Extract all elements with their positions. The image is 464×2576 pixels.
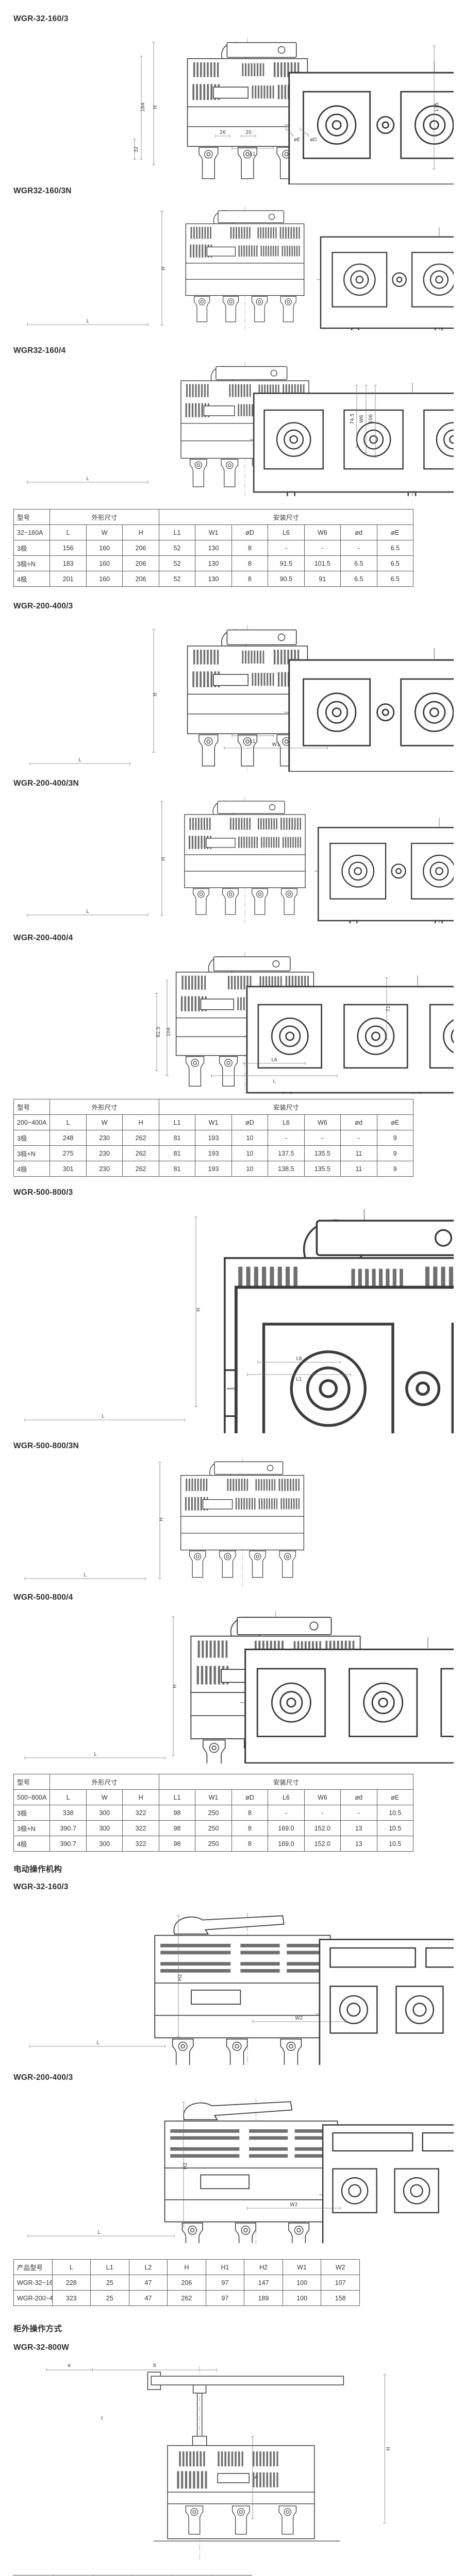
svg-text:b: b (153, 2363, 156, 2368)
table-col-header: L1 (159, 1790, 195, 1805)
table-cell: 97 (206, 2291, 244, 2306)
svg-text:H: H (159, 1517, 164, 1521)
table-cell: 3极+N (14, 1146, 50, 1161)
table-col-header: øD (231, 1115, 268, 1130)
technical-drawing-wgr-200-400-4: 82.5104L6L71 (10, 947, 454, 1094)
table-col-header: ød (341, 1115, 377, 1130)
table-cell: 52 (159, 556, 195, 571)
technical-drawing-wgr-32-800w: abchH (10, 2359, 454, 2560)
table-cell: 230 (86, 1130, 122, 1146)
table-row: 3极156160206521308---6.5 (14, 540, 413, 556)
table-cell: 138.5 (268, 1161, 304, 1177)
table-col-header: W (86, 1790, 122, 1805)
table-cell: - (341, 540, 377, 556)
svg-text:W2: W2 (295, 2015, 303, 2021)
section-title-external-operation: 柜外操作方式 (13, 2323, 62, 2334)
table-cell: 98 (159, 1805, 195, 1821)
table-row: 3极2482302628119310---9 (14, 1130, 413, 1146)
table-row: 3极+N2752302628119310137.5135.5119 (14, 1146, 413, 1161)
technical-drawing-wgr-500-800-3n: LH (10, 1455, 454, 1586)
table-col-header: L (50, 1115, 86, 1130)
section-title-wgr-500-800-4: WGR-500-800/4 (13, 1593, 73, 1602)
table-cell: 10 (231, 1161, 268, 1177)
table-col-header: H (123, 1115, 159, 1130)
table-cell: 160 (86, 571, 122, 587)
technical-drawing-wgr32-160-4: 74.5W6106L (10, 360, 454, 496)
table-cell: 91 (304, 571, 340, 587)
table-group-header: 型号 (14, 1774, 50, 1790)
svg-text:26: 26 (220, 130, 226, 135)
table-col-header: øD (231, 525, 268, 540)
table-cell: 4极 (14, 571, 50, 587)
svg-text:L: L (97, 2230, 101, 2235)
svg-text:øE: øE (294, 137, 300, 143)
section-title-motor-wgr-32-160-3: WGR-32-160/3 (13, 1883, 69, 1892)
svg-text:L: L (94, 1752, 97, 1757)
svg-text:øD: øD (310, 137, 317, 143)
svg-text:h: h (254, 2476, 259, 2479)
svg-text:L6: L6 (296, 1356, 302, 1362)
table-cell: 248 (50, 1130, 86, 1146)
svg-text:L: L (86, 318, 89, 324)
svg-text:106: 106 (368, 414, 374, 423)
table-col-header: W1 (195, 525, 231, 540)
table-cell: 300 (86, 1836, 122, 1852)
svg-text:L: L (102, 1414, 105, 1419)
table-cell: 250 (195, 1821, 231, 1836)
table-cell: 6.5 (341, 571, 377, 587)
svg-text:L: L (84, 1572, 87, 1578)
technical-drawing-wgr-200-400-3: HLL1W1 (10, 617, 454, 772)
table-group-header: 外形尺寸 (50, 510, 159, 525)
table-col-header: W2 (321, 2260, 360, 2275)
svg-text:71: 71 (386, 1006, 391, 1012)
table-cell: - (268, 1130, 304, 1146)
table-col-header: L (52, 2260, 91, 2275)
table-cell: 228 (52, 2275, 91, 2291)
table-col-header: W (86, 525, 122, 540)
table-cell: 13 (341, 1836, 377, 1852)
table-row: 3极+N18316020652130891.5101.56.56.5 (14, 556, 413, 571)
table-cell: WGR-200~400 (14, 2291, 53, 2306)
table-cell: 300 (86, 1821, 122, 1836)
table-cell: 8 (231, 556, 268, 571)
table-cell: 135.5 (304, 1146, 340, 1161)
table-cell: 13 (341, 1821, 377, 1836)
svg-text:H2: H2 (177, 1974, 183, 1980)
table-cell: 160 (86, 540, 122, 556)
table-col-header: H2 (244, 2260, 283, 2275)
svg-text:H2: H2 (183, 2162, 188, 2169)
table-cell: 107 (321, 2275, 360, 2291)
table-cell: 4极 (14, 1836, 50, 1852)
svg-text:L1: L1 (296, 1377, 302, 1382)
section-title-wgr-500-800-3: WGR-500-800/3 (13, 1188, 73, 1197)
table-col-header: W6 (304, 525, 340, 540)
table-cell: 101.5 (304, 556, 340, 571)
svg-text:135: 135 (434, 103, 440, 112)
svg-text:L1: L1 (250, 739, 255, 744)
table-cell: 193 (195, 1161, 231, 1177)
section-title-wgr32-160-4: WGR32-160/4 (13, 346, 65, 355)
table-col-header: L6 (268, 1790, 304, 1805)
svg-text:L: L (86, 476, 89, 482)
table-group-header: 型号 (14, 510, 50, 525)
table-cell: 300 (86, 1805, 122, 1821)
table-row: 3极338300322982508---10.5 (14, 1805, 413, 1821)
table-cell: 3极+N (14, 556, 50, 571)
table-cell: 9 (377, 1130, 413, 1146)
table-cell: 52 (159, 540, 195, 556)
svg-text:L: L (86, 909, 89, 914)
table-col-header: L (50, 1790, 86, 1805)
table-cell: 10.5 (377, 1821, 413, 1836)
table-cell: 390.7 (50, 1836, 86, 1852)
section-title-wgr-200-400-3: WGR-200-400/3 (13, 602, 73, 611)
table-cell: 193 (195, 1146, 231, 1161)
table-group-header: 外形尺寸 (50, 1774, 159, 1790)
section-title-wgr-32-160-3: WGR-32-160/3 (13, 14, 69, 24)
table-cell: 81 (159, 1161, 195, 1177)
table-cell: 25 (91, 2275, 129, 2291)
section-title-wgr-500-800-3n: WGR-500-800/3N (13, 1442, 79, 1451)
table-cell: 100 (283, 2275, 321, 2291)
table-cell: 8 (231, 1836, 268, 1852)
table-cell: 262 (123, 1130, 159, 1146)
table-col-header: øD (231, 1790, 268, 1805)
table-cell: 130 (195, 571, 231, 587)
technical-drawing-wgr-500-800-3: LHL6L1 (10, 1201, 454, 1433)
table-cell: 338 (50, 1805, 86, 1821)
svg-text:L: L (273, 1079, 276, 1084)
svg-text:82.5: 82.5 (156, 1026, 161, 1037)
svg-text:L: L (96, 2040, 100, 2046)
table-col-header: H (168, 2260, 206, 2275)
table-cell: 47 (129, 2275, 168, 2291)
table-cell: 323 (52, 2291, 91, 2306)
table-cell: 230 (86, 1161, 122, 1177)
catalog-page: WGR-32-160/3 164H322620L1øEøD135 WGR32-1… (0, 0, 464, 2576)
table-cell: 250 (195, 1836, 231, 1852)
table-col-header: W (86, 1115, 122, 1130)
table-cell: 169.0 (268, 1821, 304, 1836)
svg-text:H: H (172, 1684, 178, 1688)
spec-table-motor-operator: 产品型号LL1L2HH1H2W1W2WGR-32~160228254720697… (13, 2259, 360, 2306)
table-col-header: H (123, 1790, 159, 1805)
table-cell: 6.5 (377, 556, 413, 571)
table-cell: 206 (123, 540, 159, 556)
table-cell: 322 (123, 1805, 159, 1821)
table-col-header: L6 (268, 1115, 304, 1130)
table-col-header: W1 (195, 1790, 231, 1805)
table-row: 3极+N390.7300322982508169.0152.01310.5 (14, 1821, 413, 1836)
table-cell: 8 (231, 1805, 268, 1821)
table-cell: WGR-32~160 (14, 2275, 53, 2291)
svg-text:H: H (161, 266, 167, 270)
table-cell: 301 (50, 1161, 86, 1177)
table-col-header: 200~400A (14, 1115, 50, 1130)
table-cell: 147 (244, 2275, 283, 2291)
svg-text:20: 20 (245, 130, 252, 135)
table-cell: 160 (86, 556, 122, 571)
technical-drawing-wgr-500-800-4: LH (10, 1606, 454, 1764)
table-cell: 8 (231, 540, 268, 556)
table-cell: 9 (377, 1161, 413, 1177)
table-cell: - (304, 1130, 340, 1146)
table-row: 4极20116020652130890.5916.56.5 (14, 571, 413, 587)
table-cell: 3极 (14, 540, 50, 556)
table-cell: 156 (50, 540, 86, 556)
section-title-wgr-32-800w: WGR-32-800W (13, 2343, 69, 2352)
table-cell: 3极+N (14, 1821, 50, 1836)
table-cell: 206 (123, 556, 159, 571)
table-cell: 4极 (14, 1161, 50, 1177)
table-col-header: 产品型号 (14, 2260, 53, 2275)
svg-text:H: H (161, 857, 167, 860)
table-group-header: 安装尺寸 (159, 1099, 413, 1115)
section-title-wgr-200-400-4: WGR-200-400/4 (13, 934, 73, 943)
svg-text:L: L (78, 757, 81, 763)
table-cell: 100 (283, 2291, 321, 2306)
table-cell: 130 (195, 540, 231, 556)
table-cell: 90.5 (268, 571, 304, 587)
table-cell: 169.0 (268, 1836, 304, 1852)
table-cell: 6.5 (377, 571, 413, 587)
table-col-header: W1 (195, 1115, 231, 1130)
table-cell: 81 (159, 1146, 195, 1161)
table-cell: 3极 (14, 1130, 50, 1146)
table-cell: 390.7 (50, 1821, 86, 1836)
svg-text:W1: W1 (272, 742, 279, 748)
table-row: 4极3012302628119310138.5135.5119 (14, 1161, 413, 1177)
table-cell: 25 (91, 2291, 129, 2306)
table-cell: 3极 (14, 1805, 50, 1821)
table-cell: 91.5 (268, 556, 304, 571)
table-cell: 11 (341, 1146, 377, 1161)
section-title-motor-wgr-200-400-3: WGR-200-400/3 (13, 2073, 73, 2082)
technical-drawing-motor-wgr-32-160-3: H2LW2 (10, 1900, 454, 2065)
table-cell: 189 (244, 2291, 283, 2306)
section-title-motor-operator: 电动操作机构 (13, 1863, 62, 1874)
technical-drawing-wgr-200-400-3n: LH (10, 794, 454, 923)
table-cell: 201 (50, 571, 86, 587)
table-cell: 10.5 (377, 1836, 413, 1852)
table-cell: 97 (206, 2275, 244, 2291)
table-cell: 47 (129, 2291, 168, 2306)
table-col-header: W6 (304, 1115, 340, 1130)
table-cell: 250 (195, 1805, 231, 1821)
svg-text:c: c (101, 2415, 103, 2421)
svg-text:H: H (153, 105, 158, 109)
table-cell: 262 (123, 1146, 159, 1161)
table-row: WGR-200~400323254726297189100158 (14, 2291, 360, 2306)
section-title-wgr-200-400-3n: WGR-200-400/3N (13, 779, 79, 788)
svg-text:32: 32 (134, 146, 139, 152)
table-cell: 52 (159, 571, 195, 587)
svg-text:W2: W2 (290, 2202, 297, 2208)
table-cell: 10 (231, 1130, 268, 1146)
svg-text:L1: L1 (250, 151, 255, 157)
table-cell: 11 (341, 1161, 377, 1177)
table-cell: 6.5 (341, 556, 377, 571)
table-cell: 137.5 (268, 1146, 304, 1161)
svg-text:L6: L6 (271, 1057, 277, 1063)
technical-drawing-motor-wgr-200-400-3: H2LW2 (10, 2089, 454, 2243)
table-cell: - (268, 1805, 304, 1821)
table-cell: 10 (231, 1146, 268, 1161)
table-cell: 206 (168, 2275, 206, 2291)
table-cell: 135.5 (304, 1161, 340, 1177)
svg-text:104: 104 (166, 1027, 172, 1037)
svg-text:W6: W6 (359, 415, 364, 422)
svg-text:H: H (153, 692, 158, 696)
table-cell: - (341, 1805, 377, 1821)
table-row: WGR-32~160228254720697147100107 (14, 2275, 360, 2291)
table-col-header: L6 (268, 525, 304, 540)
table-cell: 98 (159, 1821, 195, 1836)
table-cell: - (268, 540, 304, 556)
spec-table-32-160: 型号外形尺寸安装尺寸32~160ALWHL1W1øDL6W6ødøE3极1561… (13, 509, 413, 587)
table-col-header: ød (341, 525, 377, 540)
table-cell: - (304, 540, 340, 556)
table-cell: 262 (168, 2291, 206, 2306)
table-col-header: ød (341, 1790, 377, 1805)
spec-table-500-800: 型号外形尺寸安装尺寸500~800ALWHL1W1øDL6W6ødøE3极338… (13, 1774, 413, 1852)
table-cell: 152.0 (304, 1821, 340, 1836)
table-cell: 275 (50, 1146, 86, 1161)
table-cell: 8 (231, 571, 268, 587)
table-col-header: øE (377, 1115, 413, 1130)
table-col-header: L1 (91, 2260, 129, 2275)
svg-text:H: H (196, 1308, 202, 1311)
table-cell: - (304, 1805, 340, 1821)
section-title-wgr32-160-3n: WGR32-160/3N (13, 187, 72, 196)
table-col-header: H1 (206, 2260, 244, 2275)
table-cell: 152.0 (304, 1836, 340, 1852)
table-col-header: L2 (129, 2260, 168, 2275)
table-cell: 130 (195, 556, 231, 571)
table-col-header: øE (377, 1790, 413, 1805)
svg-text:74.5: 74.5 (350, 413, 355, 424)
table-group-header: 安装尺寸 (159, 1774, 413, 1790)
table-group-header: 外形尺寸 (50, 1099, 159, 1115)
table-cell: 8 (231, 1821, 268, 1836)
table-col-header: 500~800A (14, 1790, 50, 1805)
table-group-header: 安装尺寸 (159, 510, 413, 525)
table-cell: 158 (321, 2291, 360, 2306)
svg-text:H: H (386, 2447, 391, 2450)
table-cell: 322 (123, 1836, 159, 1852)
table-col-header: W6 (304, 1790, 340, 1805)
technical-drawing-wgr32-160-3n: LH (10, 204, 454, 330)
table-col-header: H (123, 525, 159, 540)
table-group-header: 型号 (14, 1099, 50, 1115)
table-row: 4极390.7300322982508169.0152.01310.5 (14, 1836, 413, 1852)
table-cell: 230 (86, 1146, 122, 1161)
table-col-header: L1 (159, 1115, 195, 1130)
spec-table-200-400: 型号外形尺寸安装尺寸200~400ALWHL1W1øDL6W6ødøE3极248… (13, 1099, 413, 1177)
table-cell: 9 (377, 1146, 413, 1161)
table-cell: 98 (159, 1836, 195, 1852)
table-col-header: 32~160A (14, 525, 50, 540)
svg-text:a: a (68, 2363, 71, 2368)
table-col-header: L1 (159, 525, 195, 540)
table-cell: - (341, 1130, 377, 1146)
technical-drawing-wgr-32-160-3: 164H322620L1øEøD135 (10, 30, 454, 184)
svg-text:164: 164 (140, 103, 146, 112)
table-cell: 183 (50, 556, 86, 571)
table-cell: 10.5 (377, 1805, 413, 1821)
table-cell: 206 (123, 571, 159, 587)
table-cell: 322 (123, 1821, 159, 1836)
table-cell: 6.5 (377, 540, 413, 556)
table-cell: 262 (123, 1161, 159, 1177)
table-col-header: L (50, 525, 86, 540)
table-cell: 193 (195, 1130, 231, 1146)
table-col-header: W1 (283, 2260, 321, 2275)
table-col-header: øE (377, 525, 413, 540)
table-cell: 81 (159, 1130, 195, 1146)
